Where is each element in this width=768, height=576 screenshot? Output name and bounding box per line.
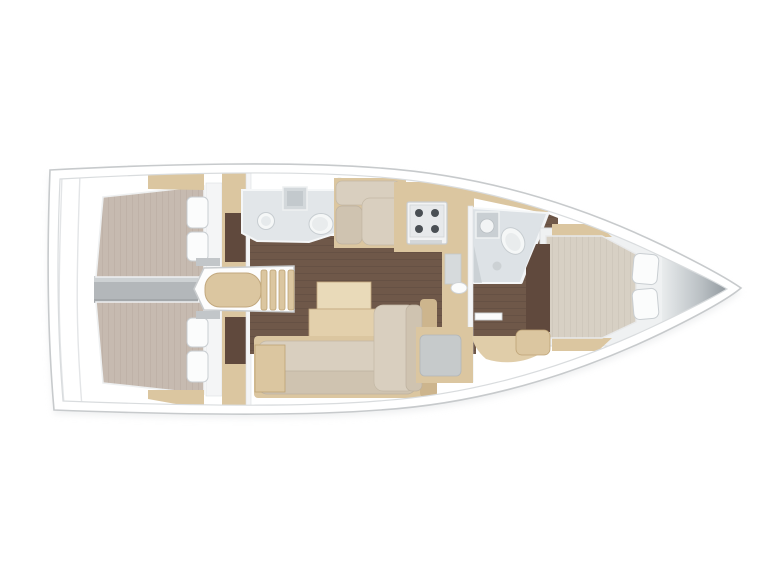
burner-icon <box>431 225 439 233</box>
companionway-steps <box>205 273 261 307</box>
cabin-seat <box>516 330 550 355</box>
settee-side-cushion <box>336 206 362 244</box>
table-leaf <box>317 282 371 309</box>
shower-panel-detail <box>287 191 303 206</box>
companionway <box>194 258 294 319</box>
pillow <box>187 197 208 228</box>
double-bed-mattress <box>546 236 636 338</box>
stove-knobs <box>410 240 442 244</box>
shower-drain-icon <box>493 262 502 271</box>
floorplan-drawing <box>0 0 768 576</box>
sink-bowl <box>261 216 271 226</box>
toilet-seat <box>312 217 328 231</box>
burner-icon <box>415 225 423 233</box>
nav-station <box>416 327 473 383</box>
burner-icon <box>431 209 439 217</box>
cabin-door <box>475 313 502 320</box>
pillow <box>632 288 660 320</box>
burner-icon <box>415 209 423 217</box>
handrail <box>196 258 220 266</box>
side-cabinet <box>255 345 285 392</box>
wardrobe-interior <box>225 317 246 364</box>
stove-top <box>410 205 444 237</box>
handrail <box>196 311 220 319</box>
pillow <box>187 318 208 347</box>
locker-handle <box>451 283 467 294</box>
pillow <box>632 253 660 285</box>
sink-bowl <box>480 219 494 233</box>
yacht-floorplan <box>0 0 768 576</box>
nav-seat-cushion <box>420 335 461 376</box>
galley-appliance <box>445 254 461 284</box>
pillow <box>187 351 208 382</box>
engine-compartment <box>94 276 198 303</box>
pillow <box>187 232 208 261</box>
